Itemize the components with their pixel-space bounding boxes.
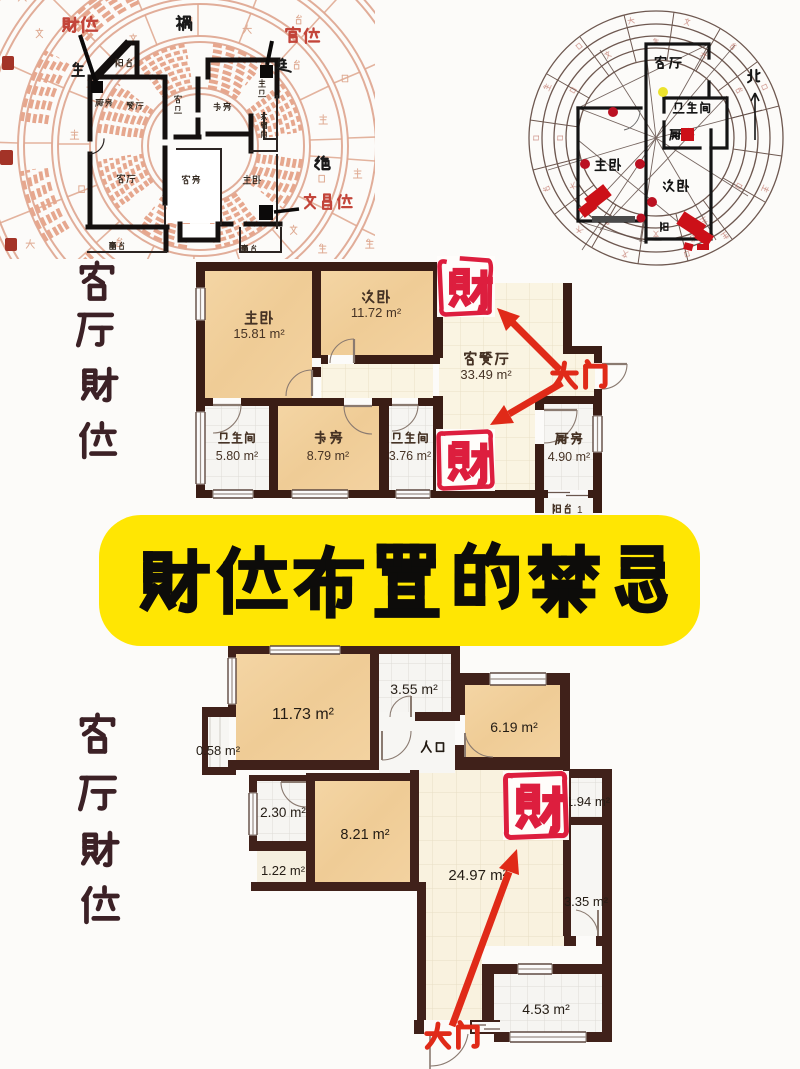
svg-text:4.53 m²: 4.53 m² <box>522 1001 570 1017</box>
svg-text:3.76 m²: 3.76 m² <box>389 449 431 463</box>
svg-text:1: 1 <box>577 505 583 516</box>
svg-text:1.94 m²: 1.94 m² <box>566 794 611 809</box>
svg-text:6.19 m²: 6.19 m² <box>490 719 538 735</box>
svg-text:33.49 m²: 33.49 m² <box>460 367 512 382</box>
svg-text:5.80 m²: 5.80 m² <box>216 449 258 463</box>
svg-text:4.90 m²: 4.90 m² <box>548 450 590 464</box>
svg-text:15.81 m²: 15.81 m² <box>233 326 285 341</box>
svg-text:3.55 m²: 3.55 m² <box>390 681 438 697</box>
svg-text:11.72 m²: 11.72 m² <box>351 305 402 320</box>
svg-text:0.58 m²: 0.58 m² <box>196 743 241 758</box>
svg-text:8.79 m²: 8.79 m² <box>307 449 349 463</box>
svg-text:1.22 m²: 1.22 m² <box>261 863 306 878</box>
svg-text:11.73 m²: 11.73 m² <box>272 706 335 723</box>
svg-text:8.21 m²: 8.21 m² <box>340 827 389 843</box>
svg-text:2.30 m²: 2.30 m² <box>260 805 306 820</box>
svg-text:24.97 m²: 24.97 m² <box>448 867 507 884</box>
svg-text:3.35 m²: 3.35 m² <box>564 894 609 909</box>
